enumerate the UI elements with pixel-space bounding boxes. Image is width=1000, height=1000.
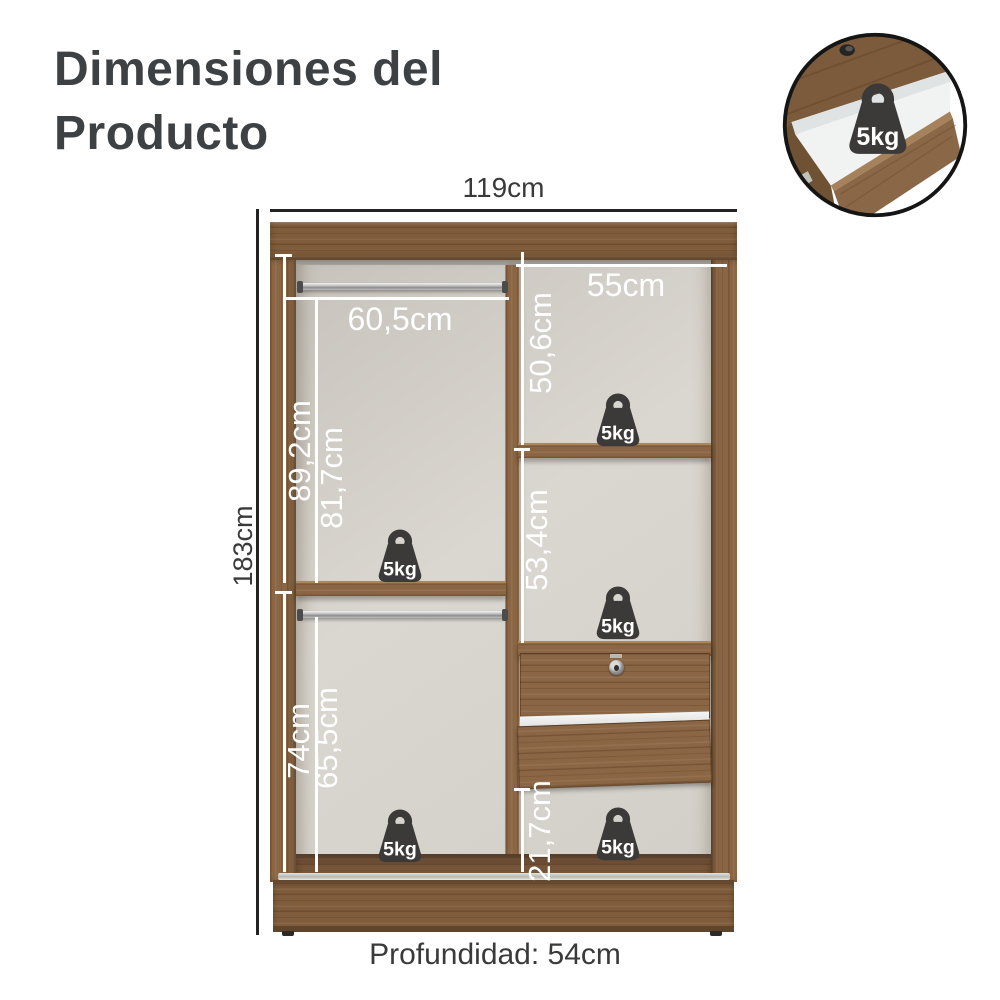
drawer-inset-illustration: 5kg	[779, 29, 971, 221]
svg-text:5kg: 5kg	[601, 837, 635, 859]
weight-icon-right-upper: 5kg	[590, 393, 646, 447]
hanging-rod-upper	[299, 283, 506, 290]
rod-cap	[297, 281, 303, 293]
upper-inner-height-label: 81,7cm	[314, 408, 350, 548]
page-title: Dimensiones del Producto	[54, 38, 574, 166]
hanging-rod-lower	[299, 611, 506, 618]
dim-tick	[514, 448, 530, 451]
dim-tick	[275, 591, 292, 594]
wardrobe-foot	[710, 931, 722, 936]
right-lower-height-label: 21,7cm	[522, 761, 558, 901]
wardrobe-diagram: 60,5cm 89,2cm 81,7cm 74cm 65,5cm 55cm 50…	[270, 222, 737, 935]
lower-inner-height-label: 65,5cm	[309, 668, 345, 808]
svg-text:5kg: 5kg	[856, 123, 899, 151]
sliding-door-rail	[278, 873, 730, 880]
right-middle-height-label: 53,4cm	[519, 470, 555, 610]
wardrobe-foot	[282, 931, 294, 936]
interior-back-panel	[296, 260, 711, 882]
right-side-panel	[711, 260, 737, 882]
inset-keyhole-highlight	[845, 46, 853, 51]
weight-icon-right-lower: 5kg	[590, 807, 646, 861]
base-front-panel	[273, 880, 734, 929]
width-dimension-line	[270, 209, 737, 212]
depth-label: Profundidad: 54cm	[260, 938, 730, 972]
left-middle-shelf	[296, 581, 506, 596]
product-dimensions-infographic: Dimensiones del Producto	[0, 0, 1000, 1000]
weight-icon-right-middle: 5kg	[590, 586, 646, 640]
drawer-top-closed	[520, 653, 710, 718]
svg-text:5kg: 5kg	[601, 616, 635, 638]
width-dimension-label: 119cm	[270, 172, 737, 204]
rod-cap	[297, 609, 303, 621]
weight-icon-left-upper: 5kg	[372, 529, 428, 583]
svg-text:5kg: 5kg	[383, 559, 417, 581]
dim-tick	[275, 254, 292, 257]
rod-cap	[502, 281, 508, 293]
drawer-keyhole-icon	[609, 660, 624, 675]
base-bottom-edge	[273, 926, 734, 932]
right-width-label: 55cm	[551, 267, 701, 304]
weight-icon-left-lower: 5kg	[372, 809, 428, 863]
height-dimension-label: 183cm	[225, 476, 261, 616]
rod-cap	[502, 609, 508, 621]
right-upper-height-label: 50,6cm	[523, 273, 559, 413]
upper-height-label: 89,2cm	[282, 381, 318, 521]
rod-width-label: 60,5cm	[325, 301, 475, 338]
drawer-capacity-inset: 5kg	[779, 29, 971, 221]
svg-text:5kg: 5kg	[601, 423, 635, 445]
top-panel	[270, 222, 737, 262]
svg-text:5kg: 5kg	[383, 839, 417, 861]
drawer-lock-plate	[610, 654, 622, 658]
